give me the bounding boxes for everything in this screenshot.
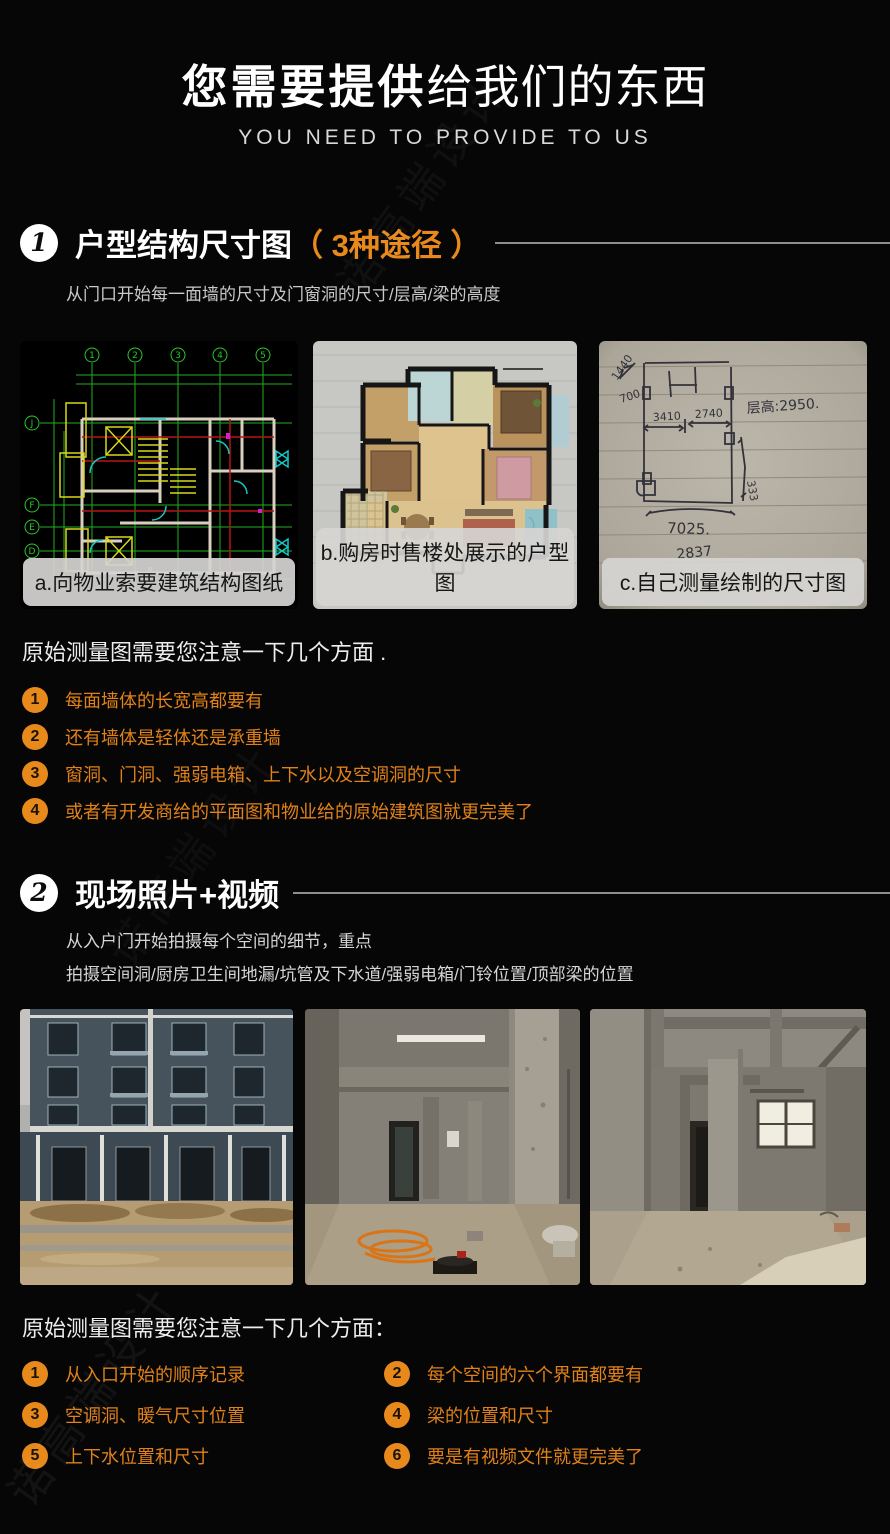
svg-text:J: J [30,419,34,429]
svg-text:3: 3 [175,351,181,361]
item-text: 每个空间的六个界面都要有 [427,1361,643,1387]
section2-description-line1: 从入户门开始拍摄每个空间的细节，重点 [66,927,890,952]
section1-points-list: 1 每面墙体的长宽高都要有 2 还有墙体是轻体还是承重墙 3 窗洞、门洞、强弱电… [22,687,890,824]
item-text: 还有墙体是轻体还是承重墙 [65,724,281,750]
section2-points-grid: 1 从入口开始的顺序记录 2 每个空间的六个界面都要有 3 空调洞、暖气尺寸位置… [22,1361,890,1469]
photo-interior-shell-2 [590,1009,866,1285]
section-floorplan-drawings: 1 户型结构尺寸图（ 3种途径 ） 从门口开始每一面墙的尺寸及门窗洞的尺寸/层高… [0,220,890,824]
interior-shell1-image [305,1009,580,1285]
svg-text:E: E [29,523,35,533]
promo-page: 诺高端设计 诺高端设计 诺高端设计 您需要提供给我们的东西 YOU NEED T… [0,0,890,1534]
page-header: 您需要提供给我们的东西 YOU NEED TO PROVIDE TO US [0,0,890,150]
page-title-rest: 给我们的东西 [427,61,709,113]
section2-number-badge: 2 [20,874,58,912]
item-text: 或者有开发商给的平面图和物业给的原始建筑图就更完美了 [65,798,533,824]
list-item: 3 空调洞、暖气尺寸位置 [22,1402,384,1428]
section1-description: 从门口开始每一面墙的尺寸及门窗洞的尺寸/层高/梁的高度 [66,280,890,305]
interior2-floor [590,1211,866,1285]
page-title-strong: 您需要提供 [182,61,427,113]
figure-hand-sketch: 层高:2950. 3410 2740 333 1440 700 7025. 28… [599,341,867,609]
page-subtitle: YOU NEED TO PROVIDE TO US [0,126,890,150]
section1-divider-line [495,242,890,244]
item-number-badge: 3 [22,1402,48,1428]
item-text: 要是有视频文件就更完美了 [427,1443,643,1469]
section1-note: 原始测量图需要您注意一下几个方面 . [22,635,890,667]
item-number-badge: 5 [22,1443,48,1469]
building-exterior-image [20,1009,293,1285]
section2-divider-line [293,892,890,894]
figure-color-floorplan: b.购房时售楼处展示的户型图 [313,341,577,609]
photo-interior-shell-1 [305,1009,580,1285]
section2-description-line2: 拍摄空间洞/厨房卫生间地漏/坑管及下水道/强弱电箱/门铃位置/顶部梁的位置 [66,960,890,985]
section-site-photos: 2 现场照片+视频 从入户门开始拍摄每个空间的细节，重点 拍摄空间洞/厨房卫生间… [0,870,890,1469]
item-text: 从入口开始的顺序记录 [65,1361,245,1387]
list-item: 1 从入口开始的顺序记录 [22,1361,384,1387]
list-item: 1 每面墙体的长宽高都要有 [22,687,890,713]
section2-note: 原始测量图需要您注意一下几个方面： [22,1311,890,1343]
svg-text:3410: 3410 [652,410,681,424]
list-item: 5 上下水位置和尺寸 [22,1443,384,1469]
svg-text:F: F [29,501,34,511]
page-title: 您需要提供给我们的东西 [0,60,890,114]
list-item: 4 梁的位置和尺寸 [384,1402,890,1428]
building-upper-floors [30,1009,293,1132]
section2-title: 现场照片+视频 [75,870,279,915]
list-item: 4 或者有开发商给的平面图和物业给的原始建筑图就更完美了 [22,798,890,824]
item-text: 上下水位置和尺寸 [65,1443,209,1469]
building-storefront [20,1132,293,1204]
figure-caption-a: a.向物业索要建筑结构图纸 [23,558,295,606]
section1-title-main: 户型结构尺寸图 [75,228,292,263]
figure-caption-b: b.购房时售楼处展示的户型图 [316,528,574,606]
section1-title-accent: （ 3种途径 ） [292,228,481,263]
item-number-badge: 4 [384,1402,410,1428]
item-number-badge: 1 [22,1361,48,1387]
svg-text:5: 5 [260,351,266,361]
building-ground [20,1201,293,1285]
list-item: 3 窗洞、门洞、强弱电箱、上下水以及空调洞的尺寸 [22,761,890,787]
section1-title: 户型结构尺寸图（ 3种途径 ） [75,220,481,265]
svg-text:1: 1 [89,351,95,361]
list-item: 2 还有墙体是轻体还是承重墙 [22,724,890,750]
item-number-badge: 1 [22,687,48,713]
item-text: 梁的位置和尺寸 [427,1402,553,1428]
item-number-badge: 6 [384,1443,410,1469]
item-number-badge: 2 [384,1361,410,1387]
svg-text:2740: 2740 [694,407,723,421]
section1-figure-row: 1 2 3 4 5 J F E D [20,341,890,609]
photo-building-exterior [20,1009,293,1285]
figure-cad-blueprint: 1 2 3 4 5 J F E D [20,341,298,609]
section2-header: 2 现场照片+视频 [20,870,890,915]
section1-number-badge: 1 [20,224,58,262]
item-text: 空调洞、暖气尺寸位置 [65,1402,245,1428]
list-item: 6 要是有视频文件就更完美了 [384,1443,890,1469]
section2-photo-row [20,1009,890,1285]
interior-shell2-image [590,1009,866,1285]
item-number-badge: 2 [22,724,48,750]
interior1-back-wall [339,1092,514,1204]
item-number-badge: 3 [22,761,48,787]
svg-text:4: 4 [217,351,223,361]
svg-text:2: 2 [132,351,138,361]
svg-text:7025.: 7025. [667,519,711,538]
svg-text:D: D [29,547,36,557]
item-number-badge: 4 [22,798,48,824]
figure-caption-c: c.自己测量绘制的尺寸图 [602,558,864,606]
section1-header: 1 户型结构尺寸图（ 3种途径 ） [20,220,890,265]
item-text: 窗洞、门洞、强弱电箱、上下水以及空调洞的尺寸 [65,761,461,787]
list-item: 2 每个空间的六个界面都要有 [384,1361,890,1387]
item-text: 每面墙体的长宽高都要有 [65,687,263,713]
